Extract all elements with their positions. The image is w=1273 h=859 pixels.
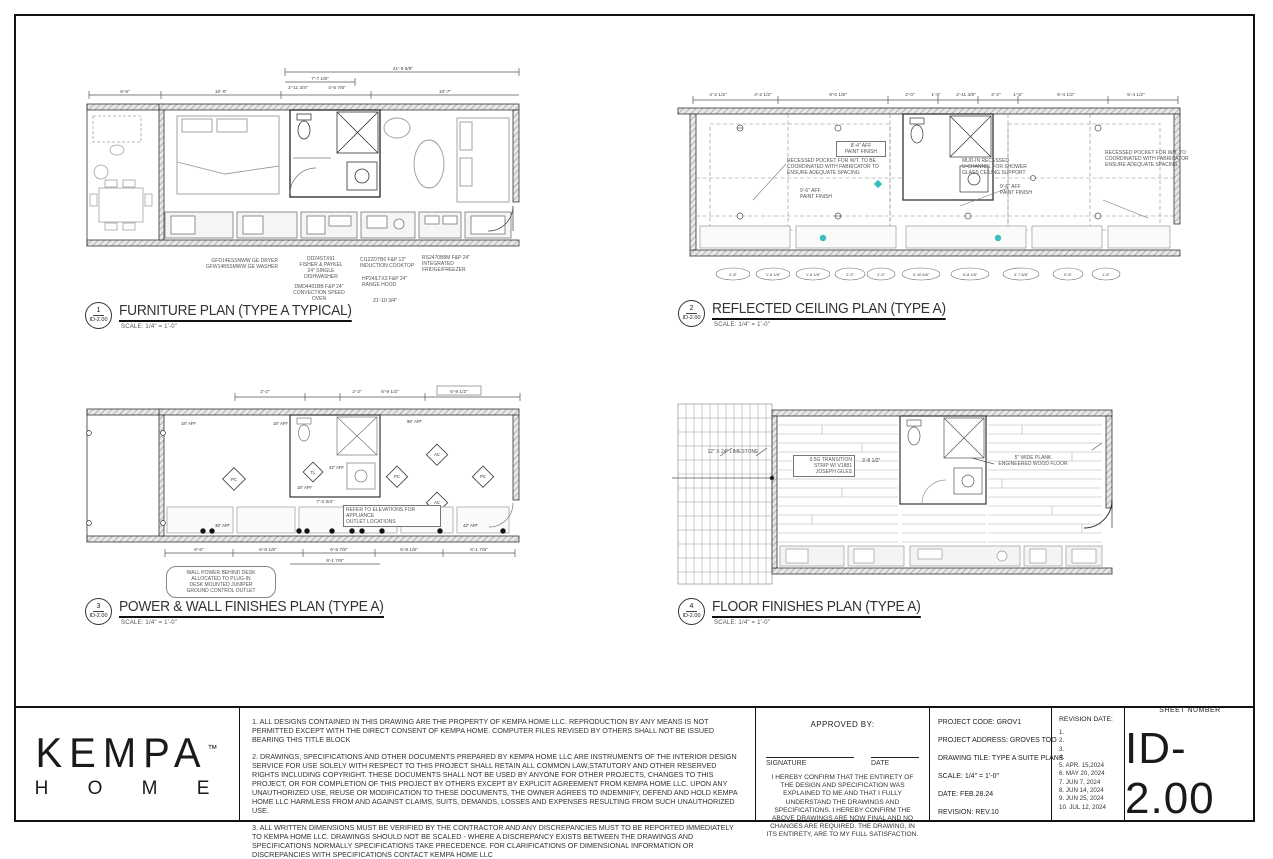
appliance-note-dishwasher: DD24STX61 FISHER & PAYKEL 24" SINGLE DIS… — [292, 256, 350, 280]
rcp-note-recessed-pocket-right: RECESSED POCKET FOR W/T. TO COORDINATED … — [1105, 150, 1205, 168]
plan-scale-text: SCALE: 1/4" = 1'-0" — [714, 620, 939, 626]
furniture-plan-drawing: 21'-9 5/8" 7'-7 1/8" 8'-6" 10'-0" 10'-7"… — [85, 62, 525, 254]
bubble-dim: 1'-5" — [877, 272, 885, 277]
drawing-title: DRAWING TILE: TYPE A SUITE PLANS — [938, 754, 1043, 763]
dim-label: 6'-9 1/2" — [381, 389, 399, 395]
boxed-dim: 6'-9 1/2" — [437, 386, 481, 395]
dim-label: 4'-2 1/2" — [709, 92, 727, 98]
detail-sheet-ref: ID-2.00 — [89, 316, 107, 324]
rcp-note-recessed-pocket-left: RECESSED POCKET FOR W/T. TO BE COORDINAT… — [787, 158, 887, 176]
approval-statement: I HEREBY CONFIRM THAT THE ENTIRETY OF TH… — [766, 774, 919, 840]
appliance-note-range-hood: HP24ILTX2 F&P 24" RANGE HOOD — [362, 276, 424, 288]
sheet-number-label: SHEET NUMBER — [1159, 707, 1221, 714]
power-plan-drawing: 2'-2" 2'-2" 6'-9 1/2" 6'-9 1/2" PC TL PC… — [85, 385, 530, 603]
dim-label: 2'-11 3/4" — [288, 85, 308, 91]
dim-label: 1'-6" — [931, 92, 941, 98]
signature-field[interactable]: SIGNATURE — [766, 757, 854, 767]
plan-title-text: POWER & WALL FINISHES PLAN (TYPE A) — [119, 598, 384, 618]
bubble-dim: 1'-6 1/8" — [766, 272, 781, 277]
finish-tags — [223, 444, 494, 513]
note-paragraph: 2. DRAWINGS, SPECIFICATIONS AND OTHER DO… — [252, 752, 743, 815]
bathroom — [900, 416, 986, 504]
finish-tag: PC — [394, 474, 400, 479]
revision-heading: REVISION DATE: — [1059, 716, 1117, 723]
aff-label: 42" AFF — [329, 465, 344, 470]
rcp-note-84-aff: 8'-4" AFF PAINT FINISH — [836, 141, 886, 157]
dim-label: 2'-2" — [260, 389, 270, 395]
plan-title-text: REFLECTED CEILING PLAN (TYPE A) — [712, 300, 946, 320]
detail-number: 2 — [686, 305, 698, 314]
plan-scale-text: SCALE: 1/4" = 1'-0" — [714, 322, 966, 328]
floor-dim: 3'-8 1/2" — [862, 458, 880, 464]
dim-label: 2'-2" — [991, 92, 1001, 98]
appliance-note-washer-dryer: GFD14ESSNWW GE DRYER GFW148SSMWW GE WASH… — [168, 258, 278, 270]
millwork-row — [165, 212, 511, 238]
plan-title-text: FURNITURE PLAN (TYPE A TYPICAL) — [119, 302, 352, 322]
living-furniture — [384, 118, 509, 202]
detail-sheet-ref: ID-2.00 — [682, 314, 700, 322]
bubble-dim: 1'-6 1/8" — [806, 272, 821, 277]
plan-title-text: FLOOR FINISHES PLAN (TYPE A) — [712, 598, 921, 618]
rcp-title: 2 ID-2.00 REFLECTED CEILING PLAN (TYPE A… — [678, 300, 966, 328]
brand-logo: KEMPA™ — [35, 729, 217, 774]
patio-furniture — [90, 116, 152, 230]
revision-item: 8. JUN 14, 2024 — [1059, 787, 1117, 795]
dim-label: 4'-2 1/2" — [754, 92, 772, 98]
sheet-number-panel: SHEET NUMBER ID-2.00 — [1125, 708, 1255, 822]
note-paragraph: 1. ALL DESIGNS CONTAINED IN THIS DRAWING… — [252, 717, 743, 744]
dim-label: 1'-5" — [1013, 92, 1023, 98]
dim-label: 2'-11 3/8" — [956, 92, 976, 98]
revision-item: 1. — [1059, 729, 1117, 737]
revision-item: 5. APR. 15,2024 — [1059, 762, 1117, 770]
finish-tag: PC — [480, 474, 486, 479]
bubble-dim: 1'-6" — [1102, 272, 1110, 277]
floor-note-transition: 0.5G TRANSITION STRIP W/ V1881 JOSEPH GI… — [793, 455, 855, 477]
dim-label: 6'-6" — [194, 547, 204, 553]
aff-label: 42" AFF — [463, 523, 478, 528]
dim-label: 7'-3 3/4" — [316, 499, 334, 505]
dim-label: 9'-1 7/8" — [326, 558, 344, 564]
plan-scale-text: SCALE: 1/4" = 1'-0" — [121, 324, 372, 330]
detail-sheet-ref: ID-2.00 — [682, 612, 700, 620]
dim-label: 5'-4 1/2" — [1127, 92, 1145, 98]
bubble-dim: 5'-8 1/8" — [963, 272, 978, 277]
logo-panel: KEMPA™ H O M E — [14, 708, 240, 822]
limestone-grid — [678, 404, 772, 584]
dim-label: 2'-0" — [905, 92, 915, 98]
aff-label: 18" AFF — [297, 485, 312, 490]
dim-label: 4'-5 7/8" — [328, 85, 346, 91]
revision-item: 3. — [1059, 746, 1117, 754]
date-label: DATE — [871, 760, 889, 767]
project-scale: SCALE: 1/4" = 1'-0" — [938, 772, 1043, 781]
floor-plan-title: 4 ID-2.00 FLOOR FINISHES PLAN (TYPE A) S… — [678, 598, 939, 626]
dim-label: 2'-2" — [352, 389, 362, 395]
dim-label: 6'-5 7/8" — [330, 547, 348, 553]
detail-number: 1 — [93, 307, 105, 316]
revision-item: 10. JUL 12, 2024 — [1059, 804, 1117, 812]
dim-label: 6'-6 1/8" — [259, 547, 277, 553]
millwork-light — [780, 546, 1102, 566]
dim-label: 5'-4 1/2" — [1057, 92, 1075, 98]
revision-item: 4. — [1059, 754, 1117, 762]
svg-text:6'-9 1/2": 6'-9 1/2" — [450, 389, 468, 395]
dim-label: 10'-0" — [215, 89, 228, 95]
detail-bubble: 4 ID-2.00 — [678, 598, 705, 625]
drawing-sheet: 21'-9 5/8" 7'-7 1/8" 8'-6" 10'-0" 10'-7"… — [0, 0, 1273, 840]
floor-note-limestone: 12" X 24" LIMESTONE — [694, 449, 772, 455]
title-block: KEMPA™ H O M E 1. ALL DESIGNS CONTAINED … — [14, 706, 1255, 822]
general-notes-panel: 1. ALL DESIGNS CONTAINED IN THIS DRAWING… — [240, 708, 756, 822]
aff-label: 96" AFF — [407, 419, 422, 424]
appliance-note-fridge: RS2470B8M F&P 24" INTEGRATED FRIDGE/FREE… — [422, 255, 490, 273]
detail-number: 3 — [93, 603, 105, 612]
detail-bubble: 1 ID-2.00 — [85, 302, 112, 329]
brand-name: KEMPA — [35, 731, 207, 777]
bed — [177, 116, 279, 194]
detail-sheet-ref: ID-2.00 — [89, 612, 107, 620]
dim-label: 5'-8 1/8" — [400, 547, 418, 553]
dim-label: 9'-0 1/8" — [829, 92, 847, 98]
approved-by-heading: APPROVED BY: — [766, 720, 919, 729]
bubble-dim: 5'-10 5/8" — [913, 272, 930, 277]
dim-label: 7'-7 1/8" — [311, 76, 329, 82]
finish-tag: TL — [311, 470, 317, 475]
millwork-light — [700, 226, 1170, 248]
bubble-dim: 2'-8" — [729, 272, 737, 277]
bathroom — [903, 114, 993, 200]
power-plan-title: 3 ID-2.00 POWER & WALL FINISHES PLAN (TY… — [85, 598, 407, 626]
finish-tag: PC — [231, 477, 237, 482]
dim-label: 10'-7" — [439, 89, 452, 95]
dim-label: 21'-9 5/8" — [393, 66, 414, 72]
plan-scale-text: SCALE: 1/4" = 1'-0" — [121, 620, 407, 626]
date-field[interactable]: DATE — [871, 757, 919, 767]
brand-word-home: H O M E — [35, 778, 227, 800]
rcp-drawing: 4'-2 1/2" 4'-2 1/2" 9'-0 1/8" 2'-0" 1'-6… — [678, 88, 1258, 300]
floor-plan-drawing — [672, 398, 1124, 598]
aff-label: 18" AFF — [273, 421, 288, 426]
project-info-panel: PROJECT CODE: GROV1 PROJECT ADDRESS: GRO… — [930, 708, 1052, 822]
signature-label: SIGNATURE — [766, 760, 806, 767]
dim-label: 6'-1 7/8" — [470, 547, 488, 553]
millwork-light — [167, 507, 509, 533]
approval-panel: APPROVED BY: SIGNATURE DATE I HEREBY CON… — [756, 708, 930, 822]
rcp-note-mud-in: MUD-IN RECESSED U-CHANNEL FOR SHOWER GLA… — [962, 158, 1062, 176]
revision-item: 6. MAY 20, 2024 — [1059, 770, 1117, 778]
bathroom — [290, 110, 380, 197]
note-paragraph: 3. ALL WRITTEN DIMENSIONS MUST BE VERIFI… — [252, 823, 743, 859]
project-code: PROJECT CODE: GROV1 — [938, 718, 1043, 727]
rcp-note-96-aff-left: 9'-6" AFF PAINT FINISH — [800, 188, 845, 200]
bubble-dim: 2'-0" — [846, 272, 854, 277]
revision-panel: REVISION DATE: 1. 2. 3. 4. 5. APR. 15,20… — [1052, 708, 1125, 822]
bubble-dim: 3'-7 5/8" — [1014, 272, 1029, 277]
trademark-symbol: ™ — [208, 744, 218, 756]
dim-label: 8'-6" — [120, 89, 130, 95]
power-note-refer-elevations: REFER TO ELEVATIONS FOR APPLIANCE OUTLET… — [343, 505, 441, 527]
power-note-wall-power-cloud: WALL POWER BEHIND DESK ALLOCATED TO PLUG… — [166, 566, 276, 598]
rcp-note-96-aff-right: 9'-6" AFF PAINT FINISH — [1000, 184, 1045, 196]
revision-item: 2. — [1059, 737, 1117, 745]
revision-item: 9. JUN 25, 2024 — [1059, 795, 1117, 803]
sheet-number-value: ID-2.00 — [1125, 724, 1255, 824]
detail-number: 4 — [686, 603, 698, 612]
project-revision: REVISION: REV.10 — [938, 808, 1043, 817]
detail-bubble: 2 ID-2.00 — [678, 300, 705, 327]
aff-label: 36" AFF — [215, 523, 230, 528]
furniture-plan-title: 1 ID-2.00 FURNITURE PLAN (TYPE A TYPICAL… — [85, 302, 372, 330]
project-address: PROJECT ADDRESS: GROVES TOO — [938, 736, 1043, 745]
finish-tag: AC — [434, 452, 440, 457]
revision-item: 7. JUN 7, 2024 — [1059, 779, 1117, 787]
detail-bubble: 3 ID-2.00 — [85, 598, 112, 625]
project-date: DATE: FEB.28.24 — [938, 790, 1043, 799]
bubble-dim: 5'-8" — [1064, 272, 1072, 277]
aff-label: 18" AFF — [181, 421, 196, 426]
floor-note-plank: 5" WIDE PLANK ENGINEERED WOOD FLOOR — [983, 455, 1083, 467]
